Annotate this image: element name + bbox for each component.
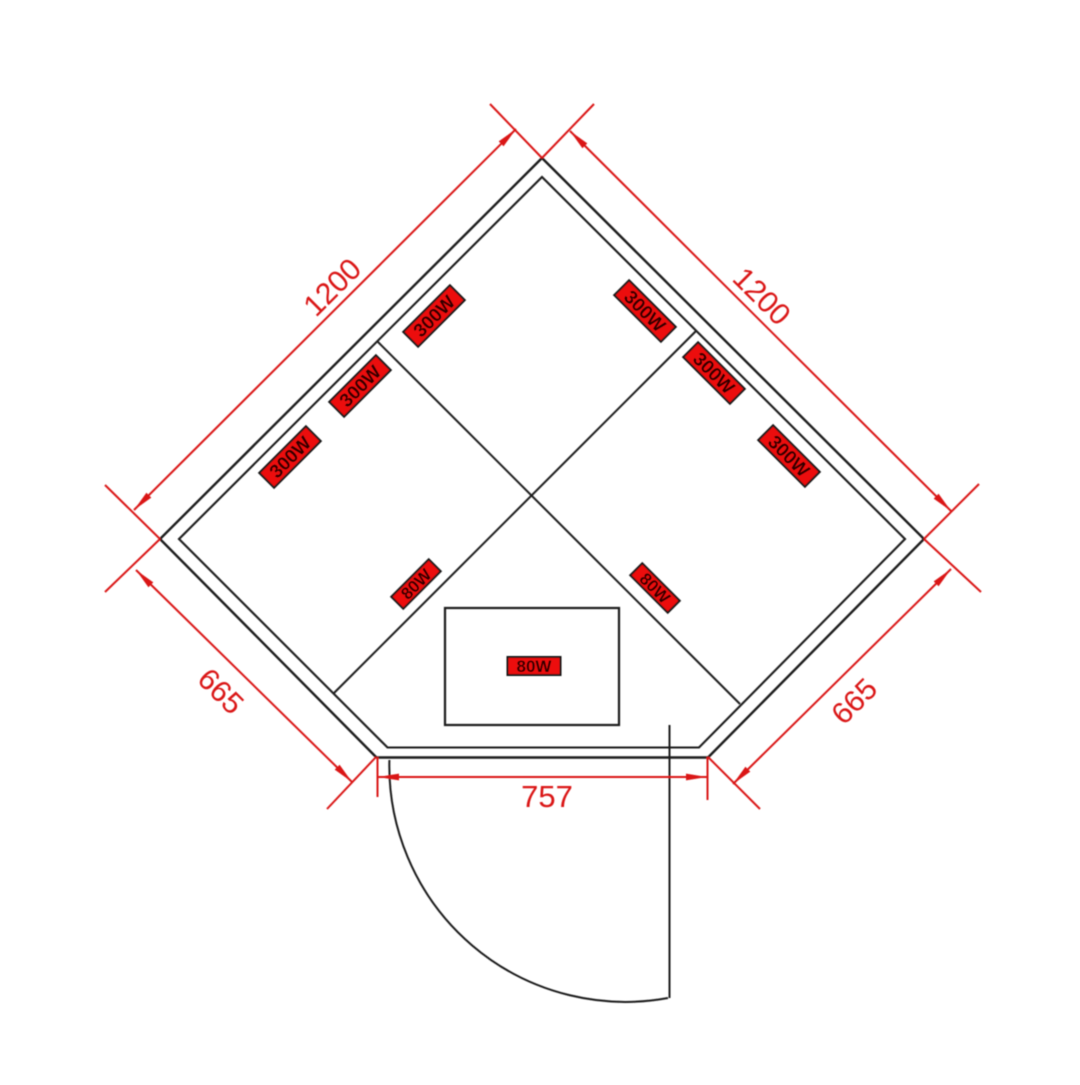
svg-text:80W: 80W <box>517 657 553 676</box>
svg-text:757: 757 <box>521 779 573 814</box>
